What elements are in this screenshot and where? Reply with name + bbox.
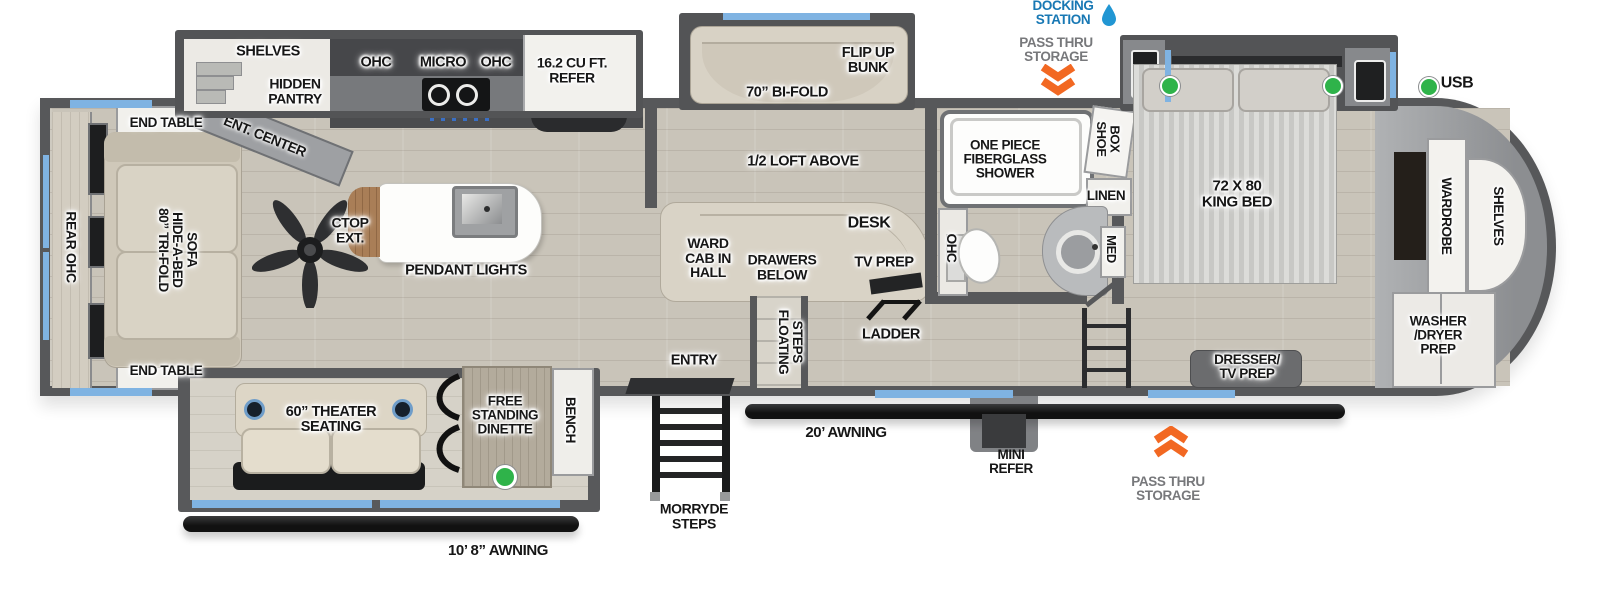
- stove-burner-right: [456, 84, 478, 106]
- cup-holder-right: [392, 399, 413, 420]
- pillow-left: [1142, 68, 1234, 112]
- loft-wall-left: [645, 108, 657, 208]
- pantry-shelf-step3: [196, 90, 226, 104]
- shoe-box: [1083, 105, 1136, 178]
- pillow-right: [1238, 68, 1330, 112]
- chevron-up-icon: [1152, 426, 1190, 458]
- window-bottom-left: [70, 388, 152, 396]
- refrigerator: [523, 35, 636, 111]
- step-rung-5: [660, 472, 722, 478]
- ceiling-fan-icon: [252, 192, 368, 308]
- washer-dryer-prep-area: [1392, 292, 1496, 388]
- bunk-slide-window: [723, 13, 870, 20]
- bath-sink: [1056, 230, 1100, 274]
- bedroom-steps-rung-1: [1082, 324, 1131, 328]
- wardrobe-interior: [1394, 152, 1426, 260]
- upper-cabinets: [330, 39, 523, 76]
- step-rail-left: [652, 396, 660, 492]
- window-rear-lower: [43, 252, 49, 340]
- theater-seat-left: [241, 428, 331, 474]
- bedroom-steps-rung-2: [1082, 346, 1131, 350]
- step-rung-1: [660, 408, 722, 414]
- floating-steps-wall-right: [801, 296, 808, 388]
- label-mini-refer: MINI REFER: [989, 448, 1033, 476]
- sofa-arm-bottom: [104, 336, 240, 366]
- island-faucet: [484, 206, 490, 212]
- entry-door: [625, 378, 734, 394]
- med-cabinet: [1100, 226, 1126, 278]
- step-rail-right: [722, 396, 730, 492]
- label-awning-20: 20’ AWNING: [805, 425, 886, 441]
- pantry-shelf-step1: [196, 62, 242, 76]
- stove-burner-left: [428, 84, 450, 106]
- wardrobe-strip: [1427, 138, 1467, 296]
- label-pass-thru-bottom: PASS THRU STORAGE: [1131, 475, 1204, 503]
- label-morryde: MORRYDE STEPS: [660, 501, 728, 530]
- label-awning-10-8: 10’ 8” AWNING: [448, 543, 548, 559]
- ladder-icon: [862, 298, 926, 322]
- sofa-cushion-1: [116, 164, 238, 253]
- pantry-shelf-step2: [196, 76, 234, 90]
- window-rear-upper: [43, 155, 49, 248]
- usb-dot-bed-left: [1160, 76, 1180, 96]
- label-usb: USB: [1441, 76, 1474, 93]
- window-top-left: [70, 100, 152, 108]
- mini-refer-door: [982, 414, 1026, 448]
- window-bottom-hall: [875, 390, 1013, 398]
- bedroom-slide-window-right: [1354, 60, 1386, 102]
- usb-dot-bed-right: [1323, 76, 1343, 96]
- cup-holder-left: [244, 399, 265, 420]
- floorplan-diagram: ENT. CENTER: [0, 0, 1600, 607]
- bedroom-window-right: [1390, 52, 1396, 98]
- step-rung-4: [660, 456, 722, 462]
- bath-faucet: [1092, 244, 1098, 250]
- chevron-down-icon: [1039, 64, 1077, 96]
- step-foot-right: [720, 492, 730, 501]
- bath-wall-left: [925, 108, 937, 300]
- sofa-cushion-2: [116, 251, 238, 340]
- water-drop-icon: [1100, 3, 1118, 27]
- island-sink-basin: [462, 194, 502, 224]
- theater-slide-window-left: [192, 500, 372, 508]
- step-rung-2: [660, 424, 722, 430]
- label-docking-station: DOCKING STATION: [1033, 0, 1094, 27]
- bedroom-steps-rung-3: [1082, 368, 1131, 372]
- floating-steps-wall-left: [750, 296, 757, 388]
- awning-bar-10ft: [183, 516, 579, 532]
- dresser: [1190, 350, 1302, 388]
- rear-ohc-cabinet: [52, 112, 92, 388]
- bench: [552, 368, 594, 476]
- step-rung-3: [660, 440, 722, 446]
- usb-indicator-dot: [1419, 77, 1439, 97]
- awning-bar-20ft: [745, 404, 1345, 419]
- floating-steps: [757, 296, 801, 388]
- theater-slide-window-right: [380, 500, 560, 508]
- window-bottom-bedroom: [1148, 390, 1235, 398]
- usb-dot-dinette: [493, 465, 517, 489]
- shower-pan: [950, 118, 1082, 196]
- dinette-chairs-icon: [428, 370, 462, 474]
- washer-dryer-divider: [1440, 292, 1442, 384]
- morryde-steps-assembly: [648, 396, 734, 502]
- theater-seat-right: [331, 428, 421, 474]
- step-foot-left: [650, 492, 660, 501]
- label-pass-thru-top: PASS THRU STORAGE: [1019, 36, 1092, 64]
